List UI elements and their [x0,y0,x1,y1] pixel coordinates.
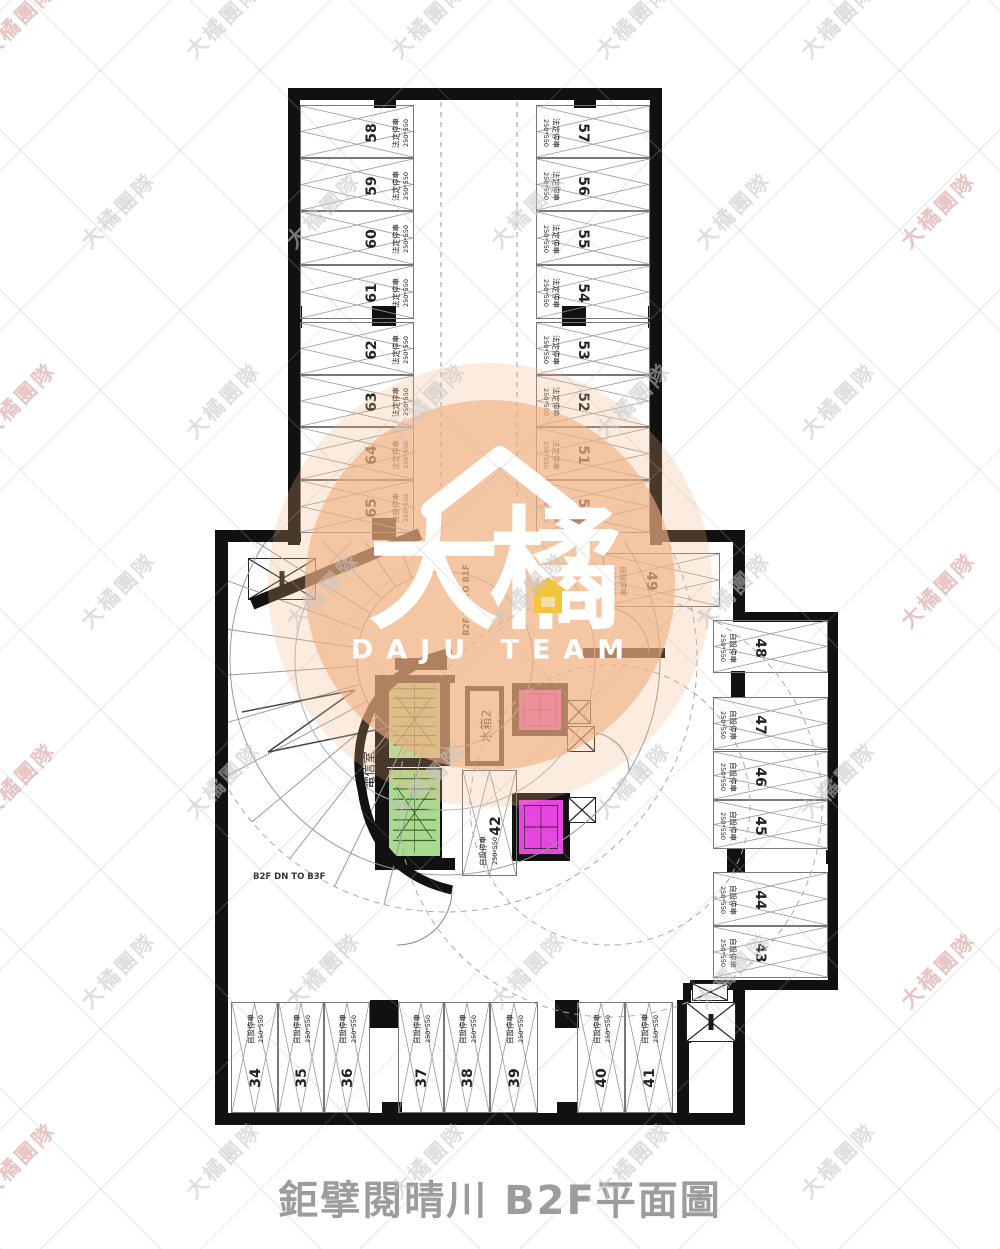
stall-size: 250*550 [402,493,410,521]
stall-size: 250*550 [257,1015,265,1043]
column-pillar [648,306,662,328]
vent-shaft-bottom-small [692,983,728,1001]
column-pillar [557,1102,577,1114]
stall-size: 250*550 [402,440,410,468]
stall-num: 64 [364,445,380,464]
wall [387,758,440,767]
wall [395,658,447,670]
stall-num: 54 [575,283,591,302]
stall-type: 自設停車 [245,1014,256,1044]
stall-type: 法定停車 [551,278,562,308]
page-title: 鉅擘閱晴川 B2F平面圖 [0,1168,1000,1226]
stall-type: 自設停車 [391,493,402,523]
stall-size: 250*550 [719,886,727,914]
wall [733,530,745,622]
stall-type: 自設停車 [728,710,739,740]
stall-type: 自設停車 [477,836,488,866]
parking-stall-36: 36自設停車250*550 [324,1002,370,1113]
elevator-lower [518,799,564,855]
parking-stall-56: 56法定停車250*550 [536,158,650,211]
wall [828,612,838,990]
vent-shaft-bottom [686,1002,736,1042]
stall-size: 250*550 [652,1015,660,1043]
stairwell-lower [387,768,442,858]
parking-stall-38: 38自設停車250*550 [444,1002,490,1113]
parking-stall-40: 40自設停車250*550 [577,1002,625,1113]
parking-stall-43: 43自設停車250*550 [713,926,828,978]
stall-num: 60 [364,229,380,248]
stall-size: 250*550 [424,1015,432,1043]
floor-plan: 水箱2 電信室 B2F UP TO B1F B2F DN TO B3F 58法定… [0,0,1000,1249]
wall [375,858,455,870]
stall-type: 自設停車 [728,811,739,841]
stall-type: 自設停車 [728,633,739,663]
parking-stall-59: 59法定停車250*550 [300,158,414,211]
stall-size: 250*550 [719,762,727,790]
stall-num: 57 [575,123,591,142]
stall-size: 250*550 [542,279,550,307]
stall-num: 55 [575,229,591,248]
column-pillar [826,850,838,864]
stall-type: 自設停車 [640,1014,651,1044]
stall-size: 250*550 [402,335,410,363]
stall-type: 法定停車 [551,118,562,148]
stall-num: 45 [752,816,768,835]
wall [440,683,450,766]
parking-stall-46: 46自設停車250*550 [713,751,828,800]
ramp-up-label: B2F UP TO B1F [462,564,472,635]
parking-stall-39: 39自設停車250*550 [490,1002,538,1113]
stall-size: 250*550 [542,388,550,416]
stall-size: 250*550 [719,710,727,738]
parking-stall-60: 60法定停車250*550 [300,211,414,265]
stall-num: 39 [507,1069,523,1088]
stall-num: 65 [364,498,380,517]
stall-num: 47 [752,715,768,734]
stall-num: 35 [294,1069,310,1088]
stall-size: 250*550 [350,1015,358,1043]
column-pillar [370,1000,398,1028]
stall-type: 自設停車 [728,938,739,968]
stall-size: 250*550 [542,225,550,253]
stall-size: 250*550 [542,493,550,521]
stall-size: 250*550 [609,567,617,595]
stall-num: 63 [364,392,380,411]
stall-size: 250*550 [470,1015,478,1043]
stall-num: 53 [575,340,591,359]
stall-num: 40 [594,1069,610,1088]
parking-stall-57: 57法定停車250*550 [536,105,650,158]
stall-size: 250*550 [491,837,499,865]
stall-type: 法定停車 [551,335,562,365]
stall-type: 法定停車 [551,440,562,470]
parking-stall-58: 58法定停車250*550 [300,105,414,158]
stall-size: 250*550 [719,811,727,839]
stall-type: 法定停車 [391,171,402,201]
stall-num: 51 [575,445,591,464]
wall [215,530,228,1125]
parking-stall-52: 52法定停車250*550 [536,375,650,427]
parking-stall-47: 47自設停車250*550 [713,697,828,750]
parking-stall-41: 41自設停車250*550 [625,1002,673,1113]
stall-num: 43 [752,943,768,962]
stairwell-upper [387,679,442,761]
stall-type: 法定停車 [391,118,402,148]
stall-size: 250*550 [604,1015,612,1043]
stall-type: 法定停車 [551,224,562,254]
stall-num: 52 [575,392,591,411]
parking-stall-34: 34自設停車250*550 [231,1002,278,1113]
stall-type: 自設停車 [412,1014,423,1044]
parking-stall-42: 42自設停車250*550 [462,770,517,876]
parking-stall-65: 65自設停車250*550 [300,480,414,533]
parking-stall-63: 63法定停車250*550 [300,375,414,427]
stall-type: 自設停車 [728,762,739,792]
parking-stall-48: 48自設停車250*550 [713,620,828,673]
stall-num: 61 [364,283,380,302]
stall-size: 250*550 [719,939,727,967]
stall-num: 42 [488,816,504,835]
stall-num: 36 [340,1069,356,1088]
ramp-down-label: B2F DN TO B3F [253,872,325,882]
wall [375,675,387,870]
wall [387,675,455,683]
stall-size: 250*550 [402,225,410,253]
stall-num: 48 [752,638,768,657]
stall-size: 250*550 [402,171,410,199]
stall-type: 自設停車 [618,566,629,596]
stall-type: 自設停車 [728,885,739,915]
stall-num: 58 [364,123,380,142]
stall-num: 41 [642,1069,658,1088]
stall-size: 250*550 [304,1015,312,1043]
stall-num: 49 [643,571,659,590]
vent-shaft-elevator-lower [568,797,596,823]
parking-stall-37: 37自設停車250*550 [398,1002,444,1113]
elevator-upper [518,689,562,731]
stall-num: 38 [460,1069,476,1088]
stall-type: 自設停車 [458,1014,469,1044]
stall-size: 250*550 [402,388,410,416]
parking-stall-54: 54法定停車250*550 [536,265,650,319]
parking-stall-55: 55法定停車250*550 [536,211,650,265]
stall-size: 250*550 [402,118,410,146]
stall-type: 自設停車 [592,1014,603,1044]
wall [650,530,745,542]
stall-num: 34 [248,1069,264,1088]
parking-stall-53: 53法定停車250*550 [536,322,650,375]
parking-stall-35: 35自設停車250*550 [278,1002,324,1113]
parking-stall-61: 61法定停車250*550 [300,265,414,319]
parking-stall-62: 62法定停車250*550 [300,322,414,375]
column-pillar [555,1000,579,1028]
stall-num: 46 [752,767,768,786]
stall-num: 50 [575,498,591,517]
stall-type: 自設停車 [551,493,562,523]
stall-type: 法定停車 [391,224,402,254]
stall-size: 250*550 [542,335,550,363]
water-tank-label: 水箱2 [476,710,495,743]
stall-type: 自設停車 [505,1014,516,1044]
stall-type: 法定停車 [391,387,402,417]
stall-size: 250*550 [542,440,550,468]
stall-type: 法定停車 [391,278,402,308]
stall-type: 法定停車 [551,171,562,201]
column-pillar [727,848,745,873]
stall-num: 37 [414,1069,430,1088]
parking-stall-49: 49自設停車250*550 [603,553,720,607]
stall-num: 59 [364,176,380,195]
stall-type: 法定停車 [551,387,562,417]
stall-type: 法定停車 [391,335,402,365]
stall-size: 250*550 [517,1015,525,1043]
stall-num: 44 [752,890,768,909]
lobby-box [567,700,591,724]
stall-num: 56 [575,176,591,195]
stall-size: 250*550 [542,171,550,199]
wall [215,1113,745,1125]
stall-num: 62 [364,340,380,359]
parking-stall-44: 44自設停車250*550 [713,872,828,926]
column-pillar [731,671,745,697]
parking-stall-50: 50自設停車250*550 [536,480,650,533]
parking-stall-64: 64法定停車250*550 [300,427,414,480]
stall-type: 法定停車 [391,440,402,470]
parking-stall-45: 45自設停車250*550 [713,800,828,849]
stall-type: 自設停車 [292,1014,303,1044]
stall-size: 250*550 [542,118,550,146]
wall [583,648,665,658]
stall-size: 250*550 [719,633,727,661]
stall-type: 自設停車 [338,1014,349,1044]
stall-size: 250*550 [402,279,410,307]
wall [288,88,662,100]
vent-shaft-elevator-upper [567,726,595,752]
column-pillar [828,688,838,704]
vent-shaft-ramp [248,558,316,600]
parking-stall-51: 51法定停車250*550 [536,427,650,480]
